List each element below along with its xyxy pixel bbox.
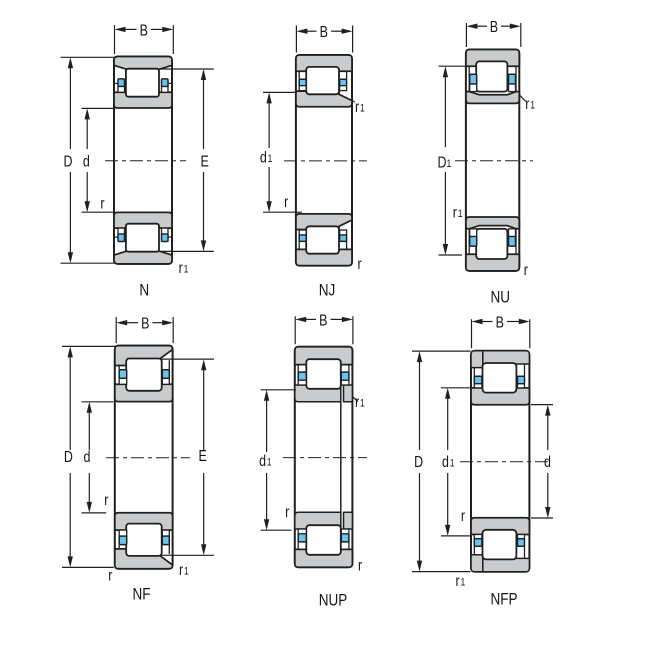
svg-text:E: E xyxy=(200,153,208,171)
svg-text:D: D xyxy=(437,154,446,172)
svg-text:1: 1 xyxy=(184,566,189,578)
svg-text:d: d xyxy=(84,448,91,466)
svg-text:r: r xyxy=(355,99,359,117)
svg-text:1: 1 xyxy=(458,208,463,220)
svg-text:1: 1 xyxy=(450,458,455,470)
svg-text:d: d xyxy=(260,149,267,167)
svg-text:NJ: NJ xyxy=(319,281,336,300)
svg-text:r: r xyxy=(525,95,529,113)
svg-text:D: D xyxy=(63,153,72,171)
svg-text:r: r xyxy=(358,256,362,274)
svg-text:NF: NF xyxy=(132,585,150,604)
svg-text:r: r xyxy=(453,204,457,222)
svg-text:r: r xyxy=(355,394,359,412)
svg-text:1: 1 xyxy=(184,264,189,276)
svg-text:1: 1 xyxy=(267,457,272,469)
svg-text:d: d xyxy=(83,153,90,171)
svg-text:B: B xyxy=(141,315,149,333)
svg-text:r: r xyxy=(456,573,460,591)
svg-text:B: B xyxy=(496,314,504,332)
svg-text:r: r xyxy=(284,194,288,212)
svg-text:d: d xyxy=(544,454,551,472)
svg-text:1: 1 xyxy=(447,158,452,170)
svg-text:D: D xyxy=(64,448,73,466)
svg-text:r: r xyxy=(179,260,183,278)
svg-text:1: 1 xyxy=(530,99,535,111)
svg-text:1: 1 xyxy=(461,577,466,589)
svg-text:NU: NU xyxy=(491,288,511,307)
svg-text:N: N xyxy=(139,281,149,300)
svg-text:d: d xyxy=(259,453,266,471)
svg-text:r: r xyxy=(104,491,108,509)
svg-text:NFP: NFP xyxy=(490,590,517,609)
svg-text:r: r xyxy=(108,567,112,585)
svg-text:1: 1 xyxy=(360,398,365,410)
svg-text:B: B xyxy=(490,19,498,37)
svg-text:E: E xyxy=(198,447,206,465)
svg-text:B: B xyxy=(140,22,148,40)
svg-text:r: r xyxy=(524,262,528,280)
svg-text:NUP: NUP xyxy=(319,591,348,610)
svg-text:r: r xyxy=(285,504,289,522)
svg-text:r: r xyxy=(179,562,183,580)
svg-text:B: B xyxy=(320,24,328,42)
svg-text:r: r xyxy=(100,195,104,213)
svg-text:r: r xyxy=(461,507,465,525)
svg-text:d: d xyxy=(442,454,449,472)
svg-text:r: r xyxy=(358,557,362,575)
svg-text:1: 1 xyxy=(360,103,365,115)
svg-text:1: 1 xyxy=(268,153,273,165)
svg-text:D: D xyxy=(414,454,423,472)
svg-text:B: B xyxy=(319,312,327,330)
